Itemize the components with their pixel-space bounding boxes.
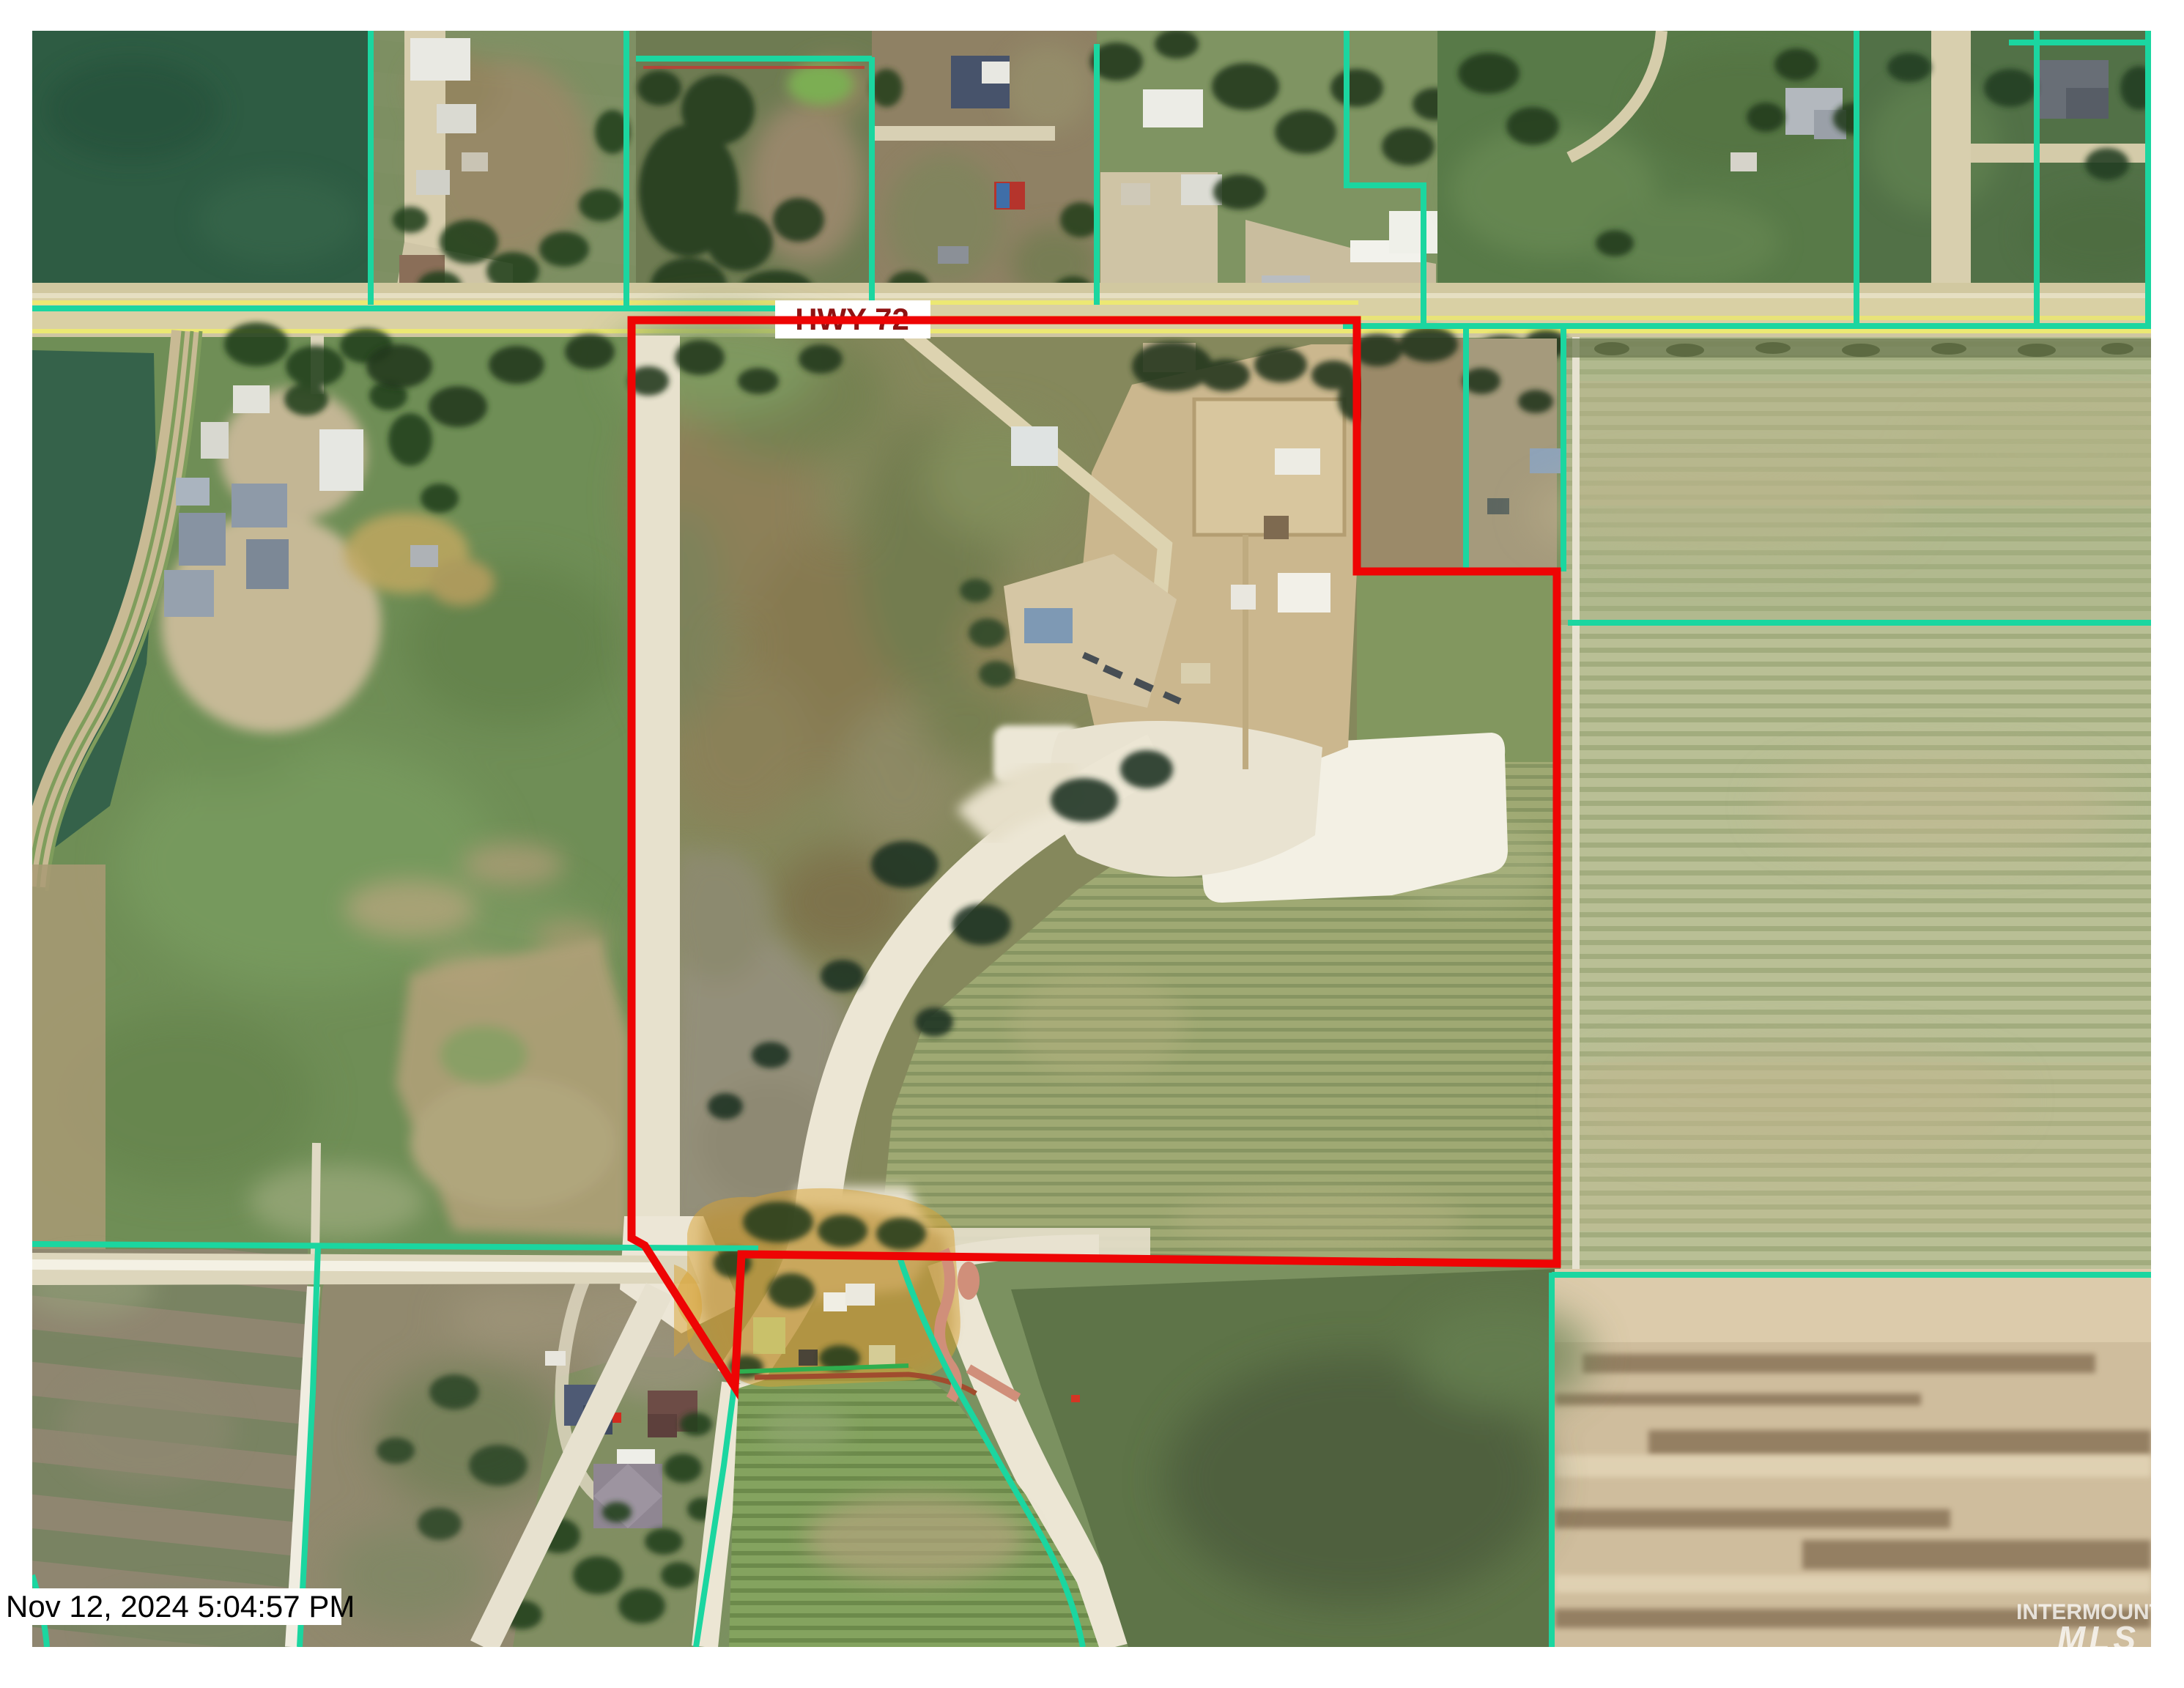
svg-text:Nov 12, 2024 5:04:57 PM: Nov 12, 2024 5:04:57 PM xyxy=(6,1589,355,1624)
svg-text:MLS: MLS xyxy=(2057,1619,2139,1657)
